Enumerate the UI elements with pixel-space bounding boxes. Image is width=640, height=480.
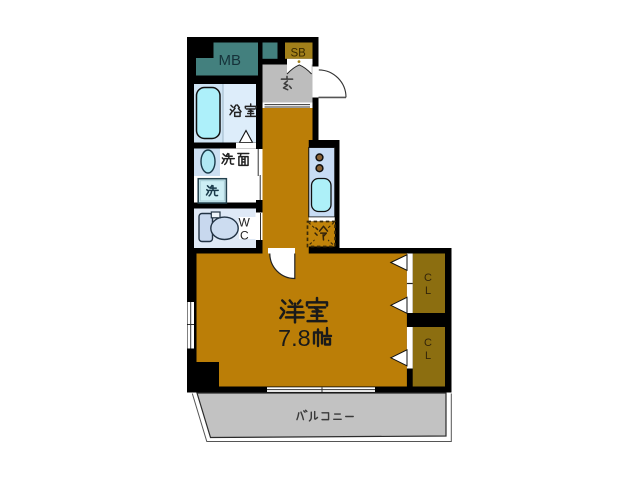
svg-text:C: C <box>240 229 249 243</box>
svg-text:SB: SB <box>291 48 307 60</box>
svg-text:L: L <box>425 350 431 362</box>
svg-text:W: W <box>239 216 251 230</box>
svg-text:7.8: 7.8 <box>278 325 311 351</box>
svg-text:C: C <box>424 337 432 349</box>
svg-text:L: L <box>425 285 431 297</box>
svg-text:C: C <box>424 272 432 284</box>
svg-text:MB: MB <box>219 52 242 69</box>
